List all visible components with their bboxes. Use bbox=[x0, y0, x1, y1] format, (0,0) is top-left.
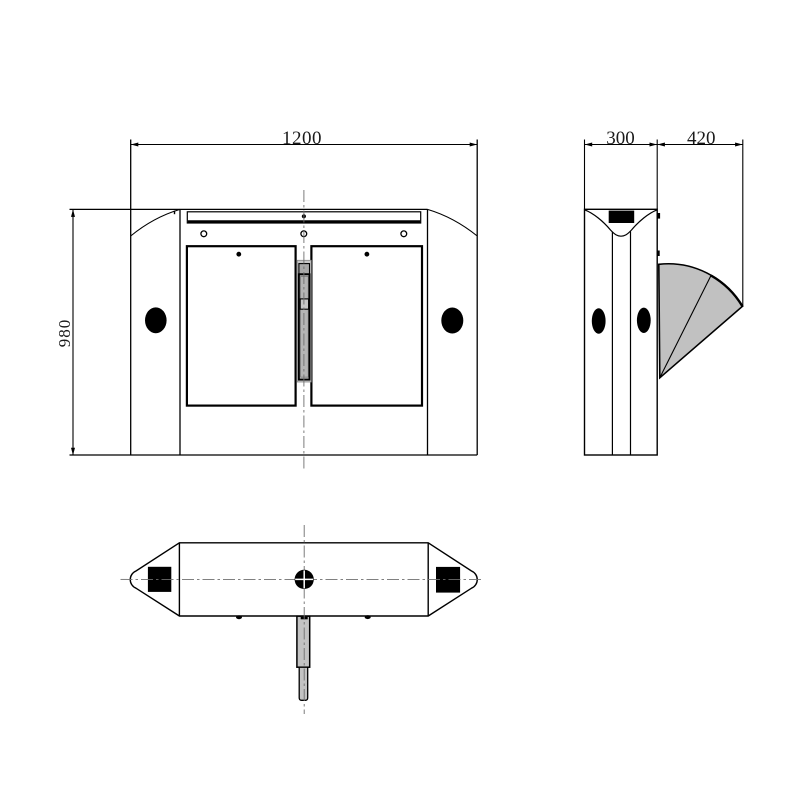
svg-text:420: 420 bbox=[687, 128, 716, 149]
svg-text:300: 300 bbox=[606, 128, 635, 149]
svg-text:1200: 1200 bbox=[282, 128, 322, 149]
svg-text:980: 980 bbox=[55, 319, 74, 348]
